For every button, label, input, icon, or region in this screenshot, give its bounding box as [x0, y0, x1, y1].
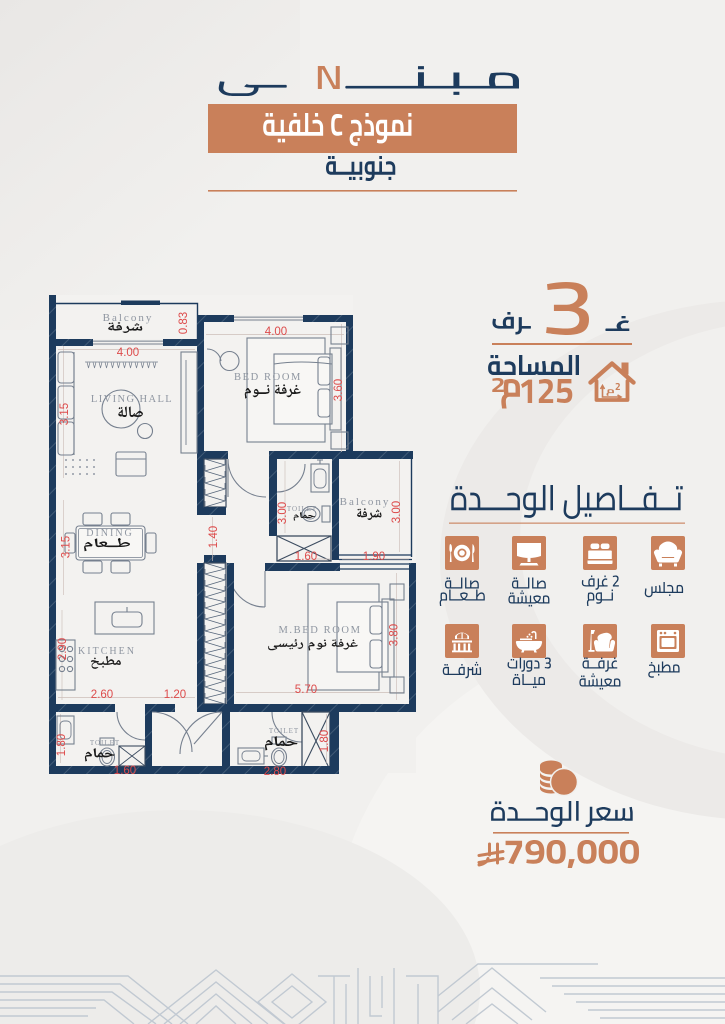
- svg-text:Balcony: Balcony: [340, 496, 391, 508]
- svg-text:3.15: 3.15: [59, 403, 71, 425]
- svg-text:3.60: 3.60: [333, 379, 345, 401]
- svg-text:TOILET: TOILET: [90, 739, 120, 747]
- svg-text:1.20: 1.20: [164, 689, 186, 701]
- svg-text:1.40: 1.40: [208, 526, 220, 548]
- svg-text:1.80: 1.80: [319, 730, 331, 752]
- svg-text:3.00: 3.00: [391, 501, 403, 523]
- svg-text:3.15: 3.15: [61, 536, 73, 558]
- svg-text:TOILET: TOILET: [269, 727, 299, 735]
- svg-text:2.60: 2.60: [91, 689, 113, 701]
- svg-text:1.80: 1.80: [56, 734, 68, 756]
- svg-text:1.60: 1.60: [295, 551, 317, 563]
- svg-text:1.60: 1.60: [114, 765, 136, 777]
- svg-text:KITCHEN: KITCHEN: [78, 646, 136, 657]
- svg-text:BED ROOM: BED ROOM: [234, 372, 302, 383]
- svg-text:2.90: 2.90: [57, 638, 69, 660]
- svg-text:DINING: DINING: [86, 528, 134, 539]
- svg-text:4.00: 4.00: [265, 326, 287, 338]
- svg-text:TOILET: TOILET: [287, 505, 317, 513]
- svg-text:1.90: 1.90: [363, 551, 385, 563]
- svg-text:3.00: 3.00: [277, 502, 289, 524]
- svg-text:4.00: 4.00: [117, 347, 139, 359]
- svg-text:2.80: 2.80: [264, 766, 286, 778]
- svg-text:M.BED ROOM: M.BED ROOM: [278, 625, 361, 636]
- svg-text:3.80: 3.80: [389, 624, 401, 646]
- svg-text:LIVING HALL: LIVING HALL: [91, 394, 173, 405]
- svg-text:Balcony: Balcony: [103, 312, 154, 324]
- svg-text:0.83: 0.83: [178, 312, 190, 334]
- svg-text:5.70: 5.70: [295, 684, 317, 696]
